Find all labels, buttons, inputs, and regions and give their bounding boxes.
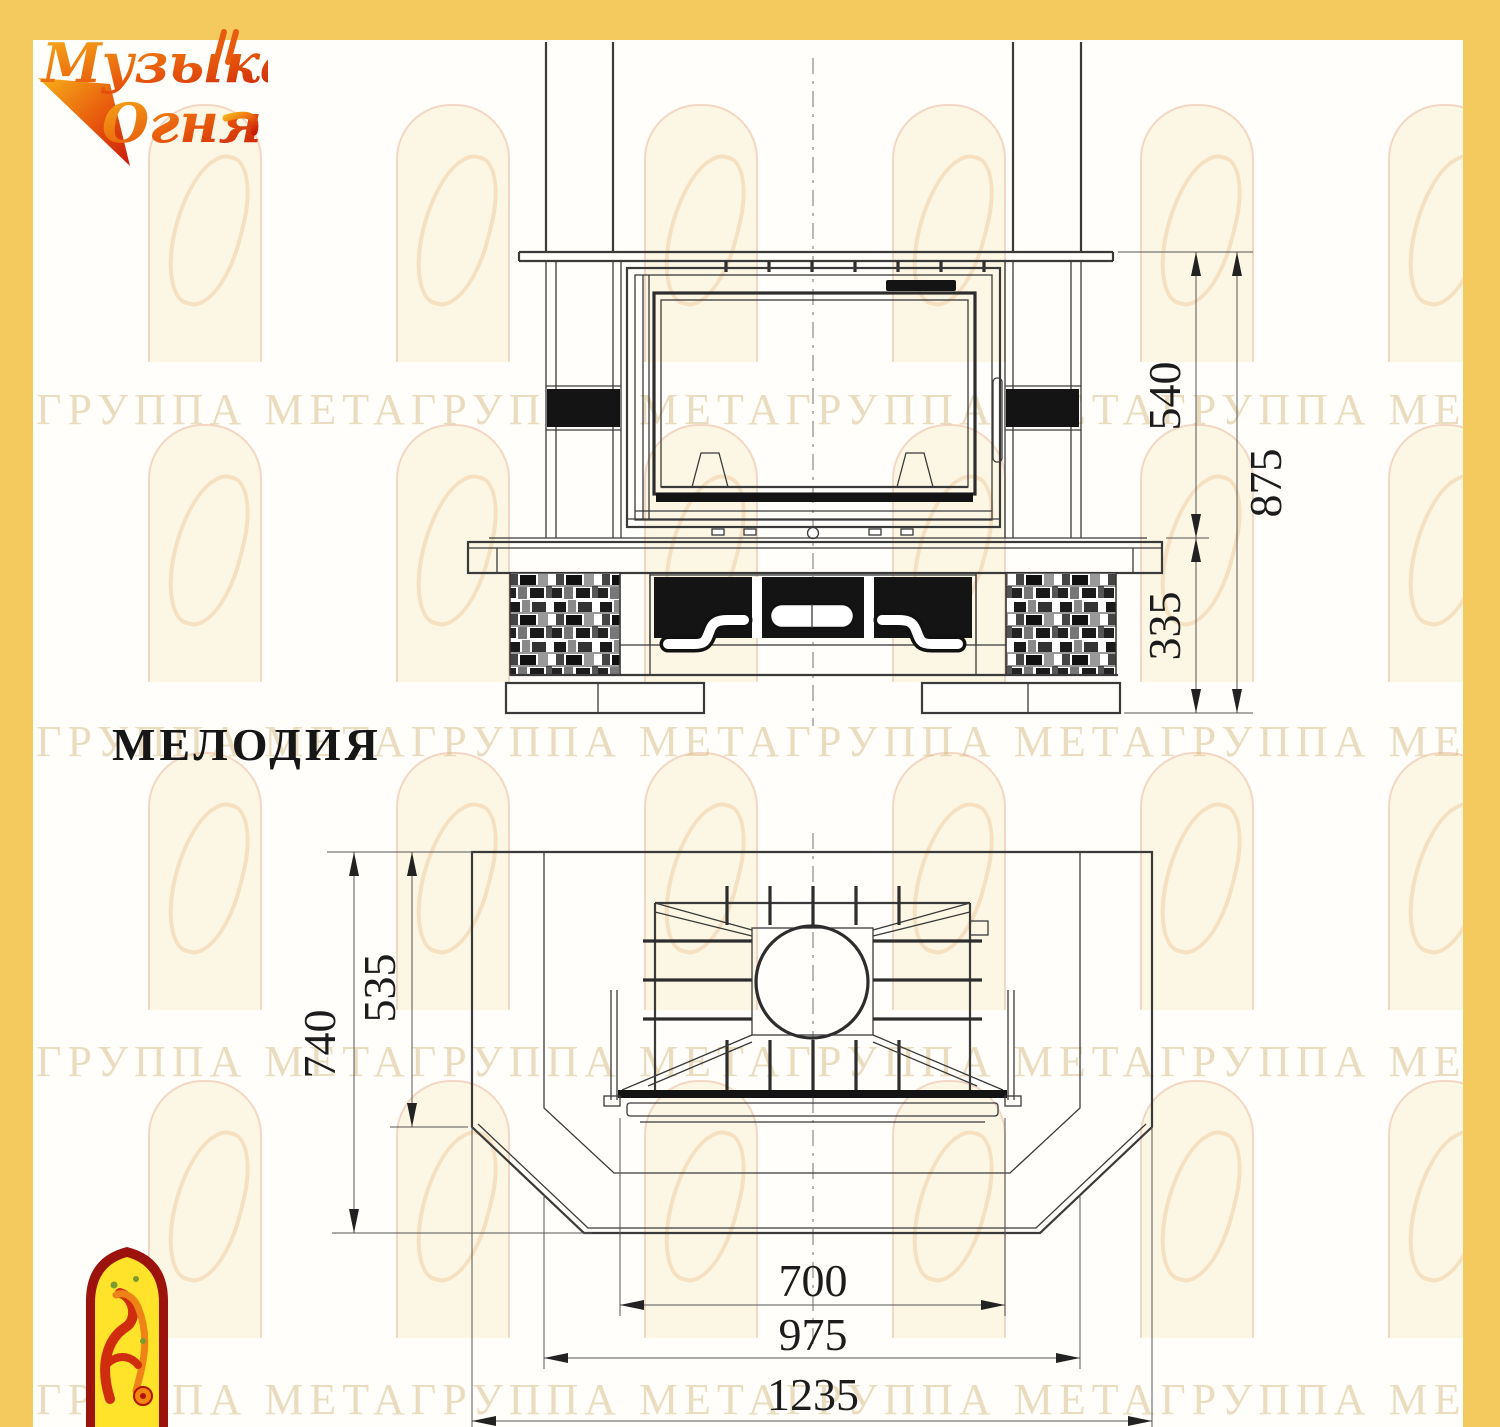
vent-strip [712, 528, 913, 539]
firebox-door [627, 268, 1002, 527]
page: ГРУППА МЕТАГРУППА МЕТАГРУППА МЕТАГРУППА … [0, 0, 1500, 1427]
dim-label-700: 700 [779, 1255, 848, 1306]
mantel-dentils [726, 261, 984, 272]
front-elevation-view: 540 335 875 [468, 42, 1291, 726]
hearth-shelf [468, 538, 1162, 573]
side-tab [970, 921, 988, 935]
dim-label-740: 740 [294, 1010, 345, 1079]
door-hinge-strip [643, 275, 649, 520]
door-brand-mark [886, 280, 956, 291]
dim-label-875: 875 [1240, 449, 1291, 518]
dim-label-1235: 1235 [767, 1369, 859, 1420]
right-column [1005, 261, 1081, 538]
flue-collar [756, 926, 868, 1038]
logo-word-2: Огня [102, 91, 262, 155]
right-foot [922, 683, 1120, 713]
right-column-insert [1006, 389, 1079, 427]
brand-logo: Музыка Огня [28, 16, 268, 181]
door-sill [656, 493, 973, 502]
left-mosaic-pillar [510, 573, 620, 675]
front-fins [727, 1040, 899, 1097]
fireplace-technical-drawing: 540 335 875 [0, 0, 1500, 1427]
border-left [0, 0, 33, 1427]
left-foot [506, 683, 704, 713]
corner-emblem [80, 1241, 174, 1427]
plan-width-dimensions: 700 975 1235 [472, 1118, 1152, 1427]
rear-fins [727, 886, 899, 925]
front-dimensions: 540 335 875 [1118, 252, 1291, 713]
logo-word-1: Музыка [40, 31, 268, 95]
plan-view: 740 535 700 975 1235 [294, 833, 1152, 1427]
dim-label-335: 335 [1139, 592, 1190, 661]
border-right [1463, 0, 1500, 1427]
model-title: МЕЛОДИЯ [112, 718, 382, 771]
left-column [546, 261, 621, 538]
mantel-shelf [519, 252, 1113, 261]
plan-depth-dimensions: 740 535 [294, 852, 592, 1233]
right-mosaic-pillar [1006, 573, 1116, 675]
left-column-insert [547, 389, 620, 427]
damper-knob [808, 528, 819, 539]
dim-label-975: 975 [779, 1309, 848, 1360]
firebox-front-bar [618, 1090, 1007, 1098]
dim-label-535: 535 [354, 954, 405, 1023]
dim-label-540: 540 [1139, 362, 1190, 431]
